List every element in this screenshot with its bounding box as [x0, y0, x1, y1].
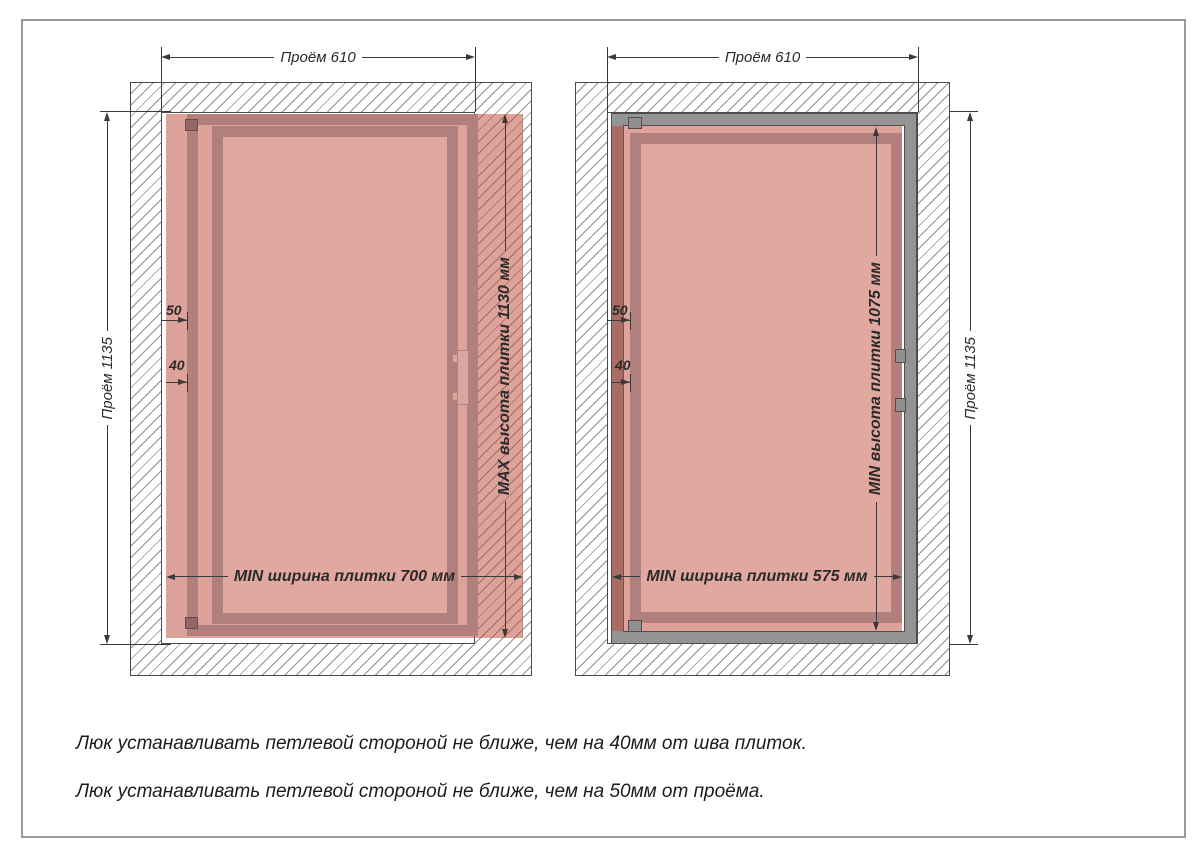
left-dim-opening-height: Проём 1135 [100, 112, 114, 644]
dim-line [107, 425, 108, 635]
arrow-up-icon [873, 127, 879, 136]
extension-line [918, 47, 919, 112]
dim-line [170, 57, 274, 58]
dim-line [505, 123, 506, 251]
arrow-left-icon [612, 574, 621, 580]
arrow-down-icon [873, 622, 879, 631]
right-hinge-offset-opening-label: 50 [612, 303, 628, 317]
right-dim-opening-width: Проём 610 [607, 50, 918, 64]
left-dim-opening-width: Проём 610 [161, 50, 475, 64]
arrow-down-icon [104, 635, 110, 644]
arrow-right-icon [909, 54, 918, 60]
right-hatch-door-frame [630, 133, 902, 623]
right-hinge-top [628, 117, 642, 129]
dim-line [616, 57, 719, 58]
dim-line [876, 136, 877, 256]
arrow-left-icon [161, 54, 170, 60]
left-hatch-door-frame-inner [212, 126, 458, 624]
dim-line [175, 576, 228, 577]
right-dim-opening-height: Проём 1135 [963, 112, 977, 644]
right-opening-width-label: Проём 610 [719, 50, 806, 65]
note-hinge-seam-distance: Люк устанавливать петлевой стороной не б… [76, 733, 807, 756]
left-door-handle [457, 350, 469, 405]
dim-line [876, 502, 877, 622]
arrow-up-icon [502, 114, 508, 123]
right-dim-tile-width: MIN ширина плитки 575 мм [612, 568, 902, 585]
arrow-right-icon [178, 317, 187, 323]
right-hinge-bottom [628, 620, 642, 632]
arrow-down-icon [967, 635, 973, 644]
left-opening-width-label: Проём 610 [274, 50, 361, 65]
dim-line [970, 121, 971, 331]
dim-line [806, 57, 909, 58]
arrow-right-icon [466, 54, 475, 60]
arrow-right-icon [621, 317, 630, 323]
right-tile-width-label: MIN ширина плитки 575 мм [640, 569, 873, 585]
dim-line [874, 576, 893, 577]
right-hinge-offset-seam-label: 40 [615, 358, 631, 372]
dim-tick [630, 312, 631, 330]
dim-line [621, 576, 640, 577]
note-hinge-opening-distance: Люк устанавливать петлевой стороной не б… [76, 781, 765, 804]
left-hinge-bottom [185, 617, 198, 629]
left-handle-tab-bottom [452, 392, 458, 401]
dim-line [461, 576, 514, 577]
arrow-down-icon [502, 629, 508, 638]
dim-tick [187, 312, 188, 330]
dim-line [362, 57, 466, 58]
left-tile-height-label: MAX высота плитки 1130 мм [497, 251, 513, 501]
arrow-right-icon [621, 379, 630, 385]
left-opening-height-label: Проём 1135 [100, 331, 115, 426]
right-latch-top [895, 349, 906, 363]
dim-line [505, 501, 506, 629]
dim-line [970, 425, 971, 635]
left-tile-width-label: MIN ширина плитки 700 мм [228, 569, 461, 585]
arrow-right-icon [893, 574, 902, 580]
right-latch-bottom [895, 398, 906, 412]
dim-tick [187, 374, 188, 392]
dim-tick [630, 374, 631, 392]
left-hinge-top [185, 119, 198, 131]
left-hinge-offset-opening-label: 50 [166, 303, 182, 317]
extension-line [950, 644, 978, 645]
right-tile-height-label: MIN высота плитки 1075 мм [868, 256, 884, 501]
right-opening-height-label: Проём 1135 [963, 331, 978, 426]
arrow-up-icon [104, 112, 110, 121]
arrow-left-icon [607, 54, 616, 60]
left-handle-tab-top [452, 354, 458, 363]
left-dim-tile-width: MIN ширина плитки 700 мм [166, 568, 523, 585]
arrow-left-icon [166, 574, 175, 580]
arrow-right-icon [514, 574, 523, 580]
dim-line [107, 121, 108, 331]
right-dim-tile-height: MIN высота плитки 1075 мм [869, 127, 883, 631]
extension-line [475, 47, 476, 112]
left-dim-tile-height: MAX высота плитки 1130 мм [498, 114, 512, 638]
arrow-up-icon [967, 112, 973, 121]
left-hinge-offset-seam-label: 40 [169, 358, 185, 372]
extension-line [100, 644, 171, 645]
arrow-right-icon [178, 379, 187, 385]
drawing-canvas: Проём 610 Проём 1135 MAX высота плитки 1… [0, 0, 1200, 849]
